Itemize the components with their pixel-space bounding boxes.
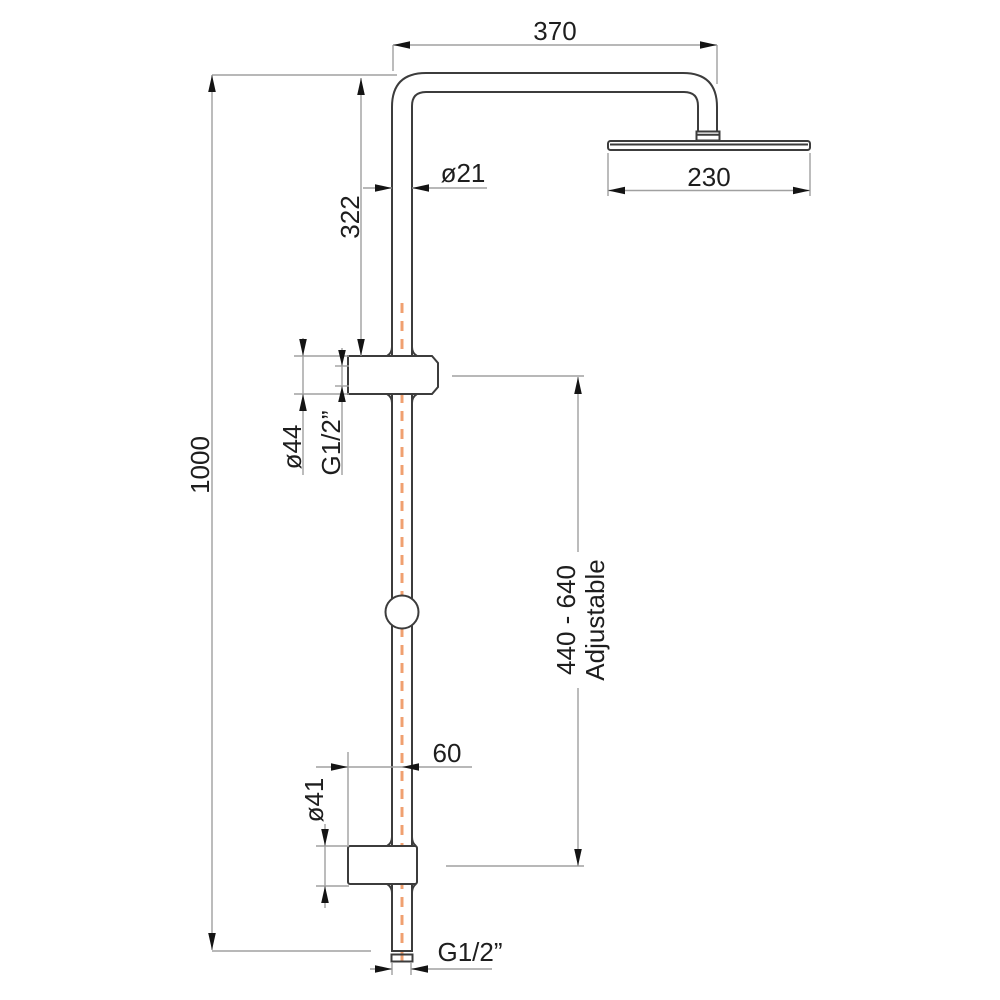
dim-adj-arrow-top [574,377,582,394]
dim-g12u-arrow-top [338,350,346,366]
riser-arm-outer-edge [392,73,717,951]
dim-o41-label: ø41 [299,778,329,823]
dim-g12b-arrow-left [375,965,392,973]
dim-1000-label: 1000 [185,436,215,494]
riser-arm-inner-edge [412,92,698,951]
dim-o44-label: ø44 [277,425,307,470]
slider-knob [386,596,419,629]
dim-1000: 1000 [185,75,397,951]
dim-adj-word-label: Adjustable [580,559,610,680]
shower-column-drawing: 370 230 ø21 322 1000 [0,0,1000,1000]
dim-230-label: 230 [687,162,730,192]
dim-370-label: 370 [533,16,576,46]
dim-upper-thread: G1/2” [316,348,349,476]
dim-lower-bracket-diameter: ø41 [299,778,349,908]
dim-60-arrow-right [402,763,419,771]
dim-322: 322 [335,78,365,356]
dim-1000-arrow-bottom [208,933,216,950]
dim-230: 230 [608,153,810,196]
dim-o21-label: ø21 [441,158,486,188]
dim-60-label: 60 [433,738,462,768]
dim-230-arrow-right [793,187,810,195]
dim-o21-arrow-left [375,184,392,192]
dim-o44-arrow-top [299,339,307,356]
lower-wall-bracket [348,846,417,884]
dim-outlet-thread: G1/2” [370,937,503,975]
dim-adj-range-label: 440 - 640 [551,565,581,675]
dim-370-arrow-right [700,41,717,49]
dim-60-arrow-left [331,763,348,771]
dim-g12b-label: G1/2” [437,937,502,967]
dim-o41-arrow-bottom [321,886,329,903]
upper-wall-bracket [348,356,438,394]
shower-unit [348,73,810,962]
dim-o21-arrow-right [412,184,429,192]
technical-drawing-page: 370 230 ø21 322 1000 [0,0,1000,1000]
dim-322-label: 322 [335,195,365,238]
dim-g12b-arrow-right [411,965,428,973]
dim-o41-arrow-top [321,829,329,846]
dim-370-arrow-left [393,41,410,49]
dim-230-arrow-left [608,187,625,195]
dim-adjustable: 440 - 640 Adjustable [446,376,610,866]
dim-g12u-label: G1/2” [316,410,346,475]
dim-322-arrow-top [357,78,365,95]
dim-o44-arrow-bottom [299,394,307,411]
shower-head-nut [697,132,720,141]
dim-adj-arrow-bottom [574,849,582,866]
dim-60: 60 [316,738,472,845]
dim-1000-arrow-top [208,75,216,92]
dim-322-arrow-bottom [357,339,365,356]
dim-pipe-diameter: ø21 [363,158,487,192]
